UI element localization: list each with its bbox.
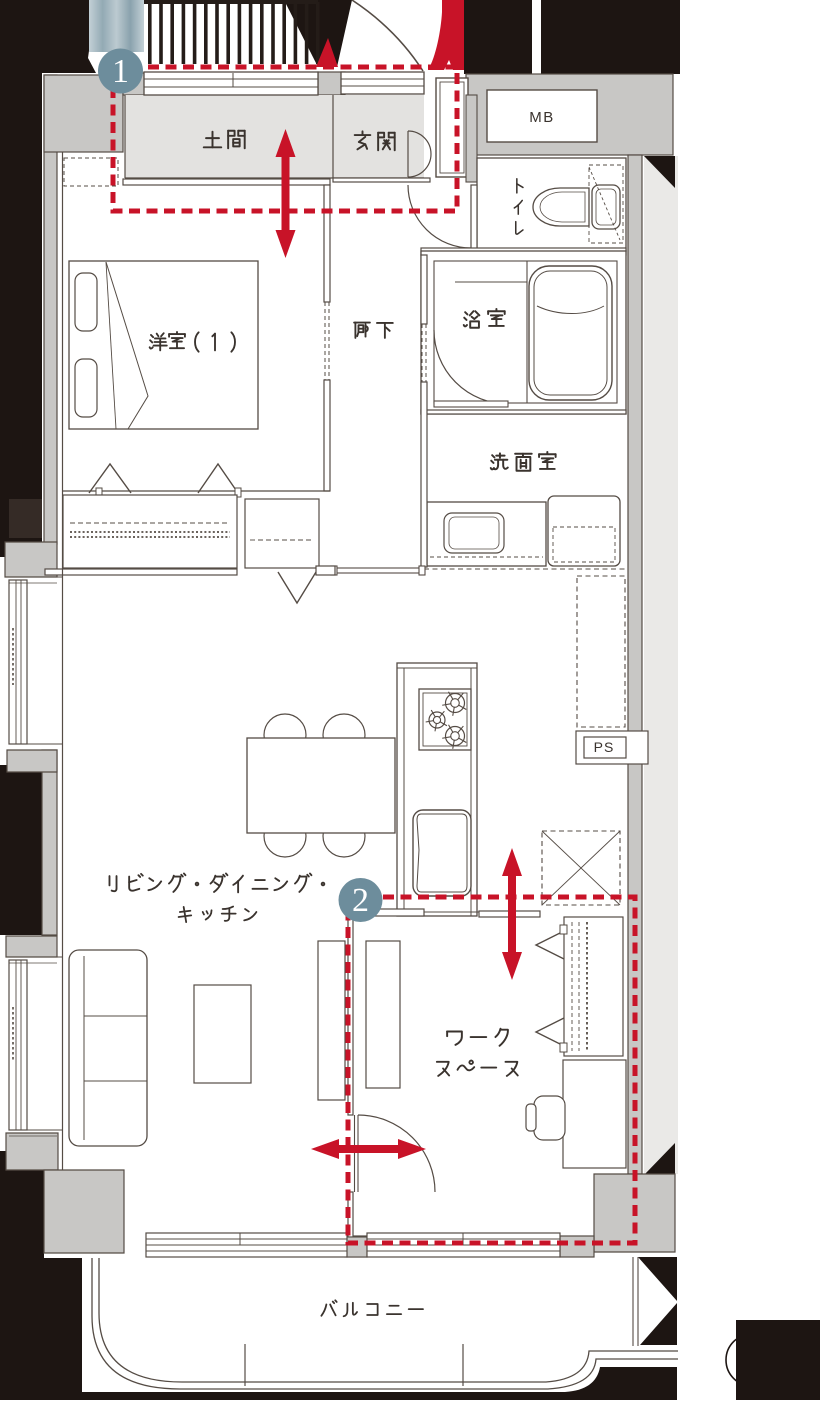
svg-text:2: 2 bbox=[352, 882, 369, 919]
svg-text:MB: MB bbox=[529, 109, 555, 126]
svg-text:PS: PS bbox=[594, 739, 615, 755]
svg-text:1: 1 bbox=[112, 53, 129, 90]
